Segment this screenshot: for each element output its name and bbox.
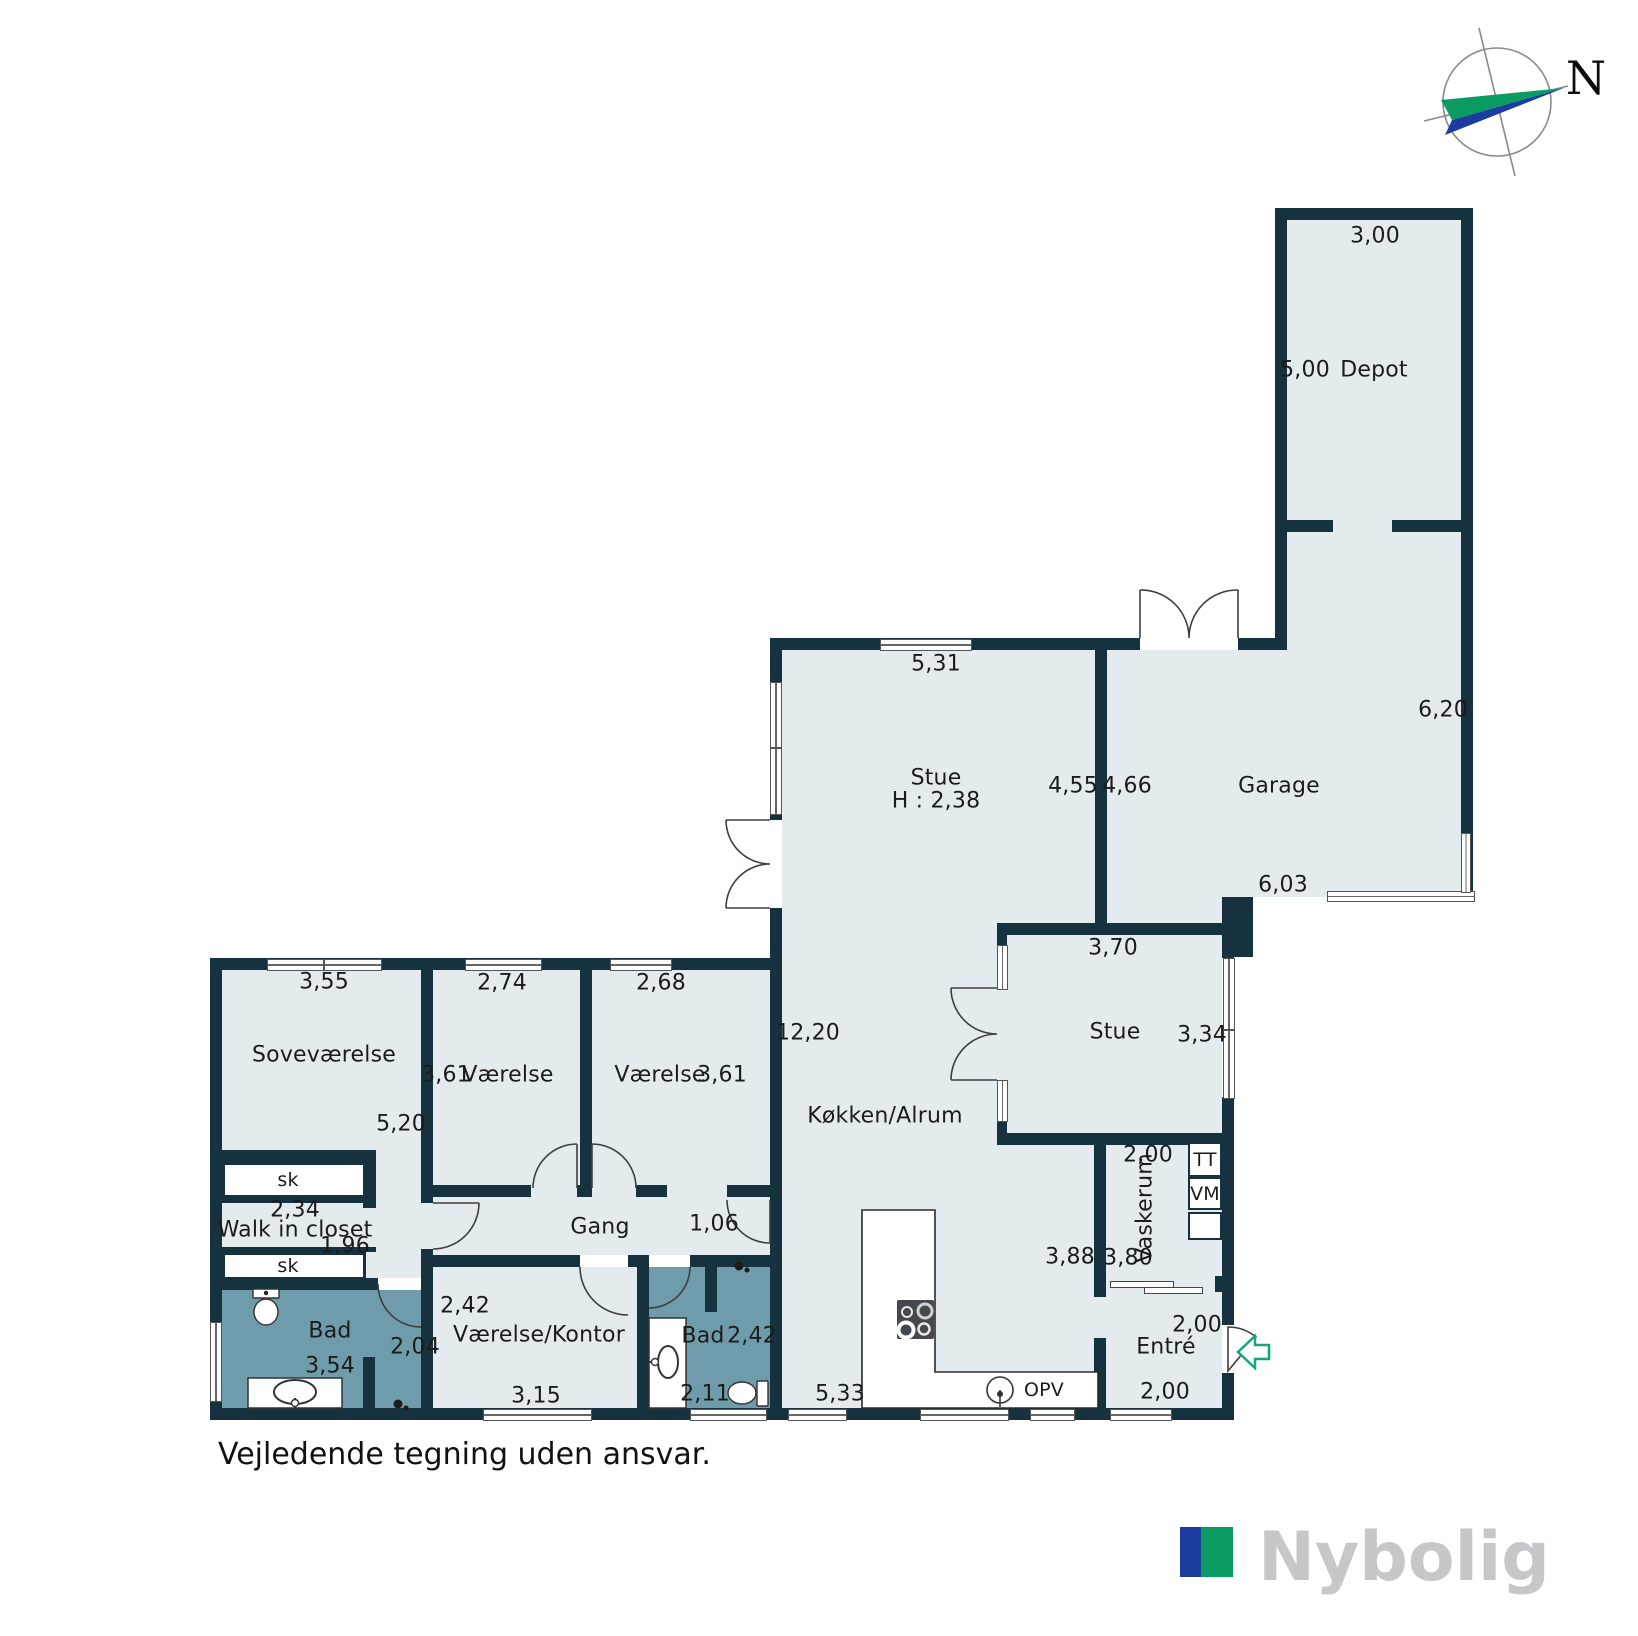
bad1-name-label: Bad — [308, 1319, 351, 1344]
stue2-name-label: Stue — [1090, 1020, 1141, 1045]
dishwasher-label: OPV — [1024, 1379, 1064, 1401]
stue1-ceiling-label: H : 2,38 — [892, 789, 981, 814]
v1-width-label: 2,74 — [477, 971, 527, 996]
entre-name-label: Entré — [1136, 1335, 1196, 1360]
sk2-label: sk — [277, 1255, 298, 1277]
depot-width-label: 3,00 — [1350, 224, 1400, 249]
dryer-label: TT — [1193, 1149, 1216, 1171]
bad2-width-label: 2,11 — [680, 1382, 730, 1407]
vk-depth-label: 2,42 — [440, 1294, 490, 1319]
koekken-east-dim-label: 3,88 — [1045, 1245, 1095, 1270]
vk-name-label: Værelse/Kontor — [453, 1323, 625, 1348]
bad1-width-label: 3,54 — [305, 1354, 355, 1379]
garage-depth-west-label: 4,66 — [1102, 774, 1152, 799]
depot-depth-label: 5,00 — [1280, 358, 1330, 383]
v1-name-label: Værelse — [462, 1063, 553, 1088]
v2-depth-label: 3,61 — [697, 1063, 747, 1088]
gang-name-label: Gang — [570, 1215, 629, 1240]
garage-width-label: 6,03 — [1258, 873, 1308, 898]
entre-depth-label: 2,00 — [1140, 1380, 1190, 1405]
floor-plan: 3,00 5,00 Depot 5,31 Stue H : 2,38 4,55 … — [0, 0, 1638, 1636]
koekken-name-label: Køkken/Alrum — [807, 1104, 962, 1129]
door-vaerelse-kontor — [580, 1267, 628, 1315]
compass-icon — [1424, 28, 1568, 176]
vanity-bad1 — [248, 1378, 342, 1408]
compass-north-label: N — [1566, 51, 1606, 105]
toilet-bad1 — [253, 1289, 279, 1325]
garage-name-label: Garage — [1238, 774, 1320, 799]
door-vaerelse1 — [533, 1144, 577, 1188]
toilet-bad2 — [728, 1381, 768, 1406]
shower-head-bad2 — [735, 1262, 750, 1273]
sove-width-label: 3,55 — [299, 970, 349, 995]
stue1-depth-label: 4,55 — [1048, 774, 1098, 799]
washer-label: VM — [1190, 1183, 1220, 1205]
stue2-depth-label: 3,34 — [1177, 1023, 1227, 1048]
gang-opening-label: 1,06 — [689, 1212, 739, 1237]
nybolig-logo-blue-block — [1180, 1527, 1201, 1577]
vaskerum-depth-label: 3,80 — [1103, 1246, 1153, 1271]
bad2-depth-label: 2,42 — [727, 1324, 777, 1349]
bad2-name-label: Bad — [681, 1324, 724, 1349]
door-bad1 — [378, 1284, 421, 1327]
stue1-name-label: Stue — [911, 766, 962, 791]
koekken-width-label: 5,33 — [815, 1382, 865, 1407]
wic-depth-label: 1,96 — [320, 1234, 370, 1259]
nybolig-logo-text: Nybolig — [1258, 1518, 1550, 1597]
french-door-garage-north — [1140, 590, 1238, 638]
nybolig-logo-green-block — [1201, 1527, 1233, 1577]
french-door-stue1-west — [726, 820, 770, 908]
stue2-width-label: 3,70 — [1088, 936, 1138, 961]
sk1-label: sk — [277, 1169, 298, 1191]
v2-width-label: 2,68 — [636, 971, 686, 996]
door-sovevaerelse — [433, 1203, 479, 1249]
disclaimer-text: Vejledende tegning uden ansvar. — [218, 1437, 711, 1472]
depot-name-label: Depot — [1340, 358, 1408, 383]
bad1-door-dim-label: 2,04 — [390, 1335, 440, 1360]
koekken-length-label: 12,20 — [776, 1021, 840, 1046]
garage-depth-east-label: 6,20 — [1418, 698, 1468, 723]
door-bad2 — [649, 1267, 690, 1308]
vk-width-label: 3,15 — [511, 1384, 561, 1409]
sove-depth-label: 5,20 — [376, 1112, 426, 1137]
shower-head-bad1 — [394, 1400, 409, 1411]
cooktop — [897, 1300, 934, 1339]
v2-name-label: Værelse — [614, 1063, 705, 1088]
french-door-stue2-west — [951, 988, 997, 1080]
sove-name-label: Soveværelse — [252, 1043, 396, 1068]
stue1-width-label: 5,31 — [911, 652, 961, 677]
door-vaerelse2 — [592, 1144, 636, 1188]
